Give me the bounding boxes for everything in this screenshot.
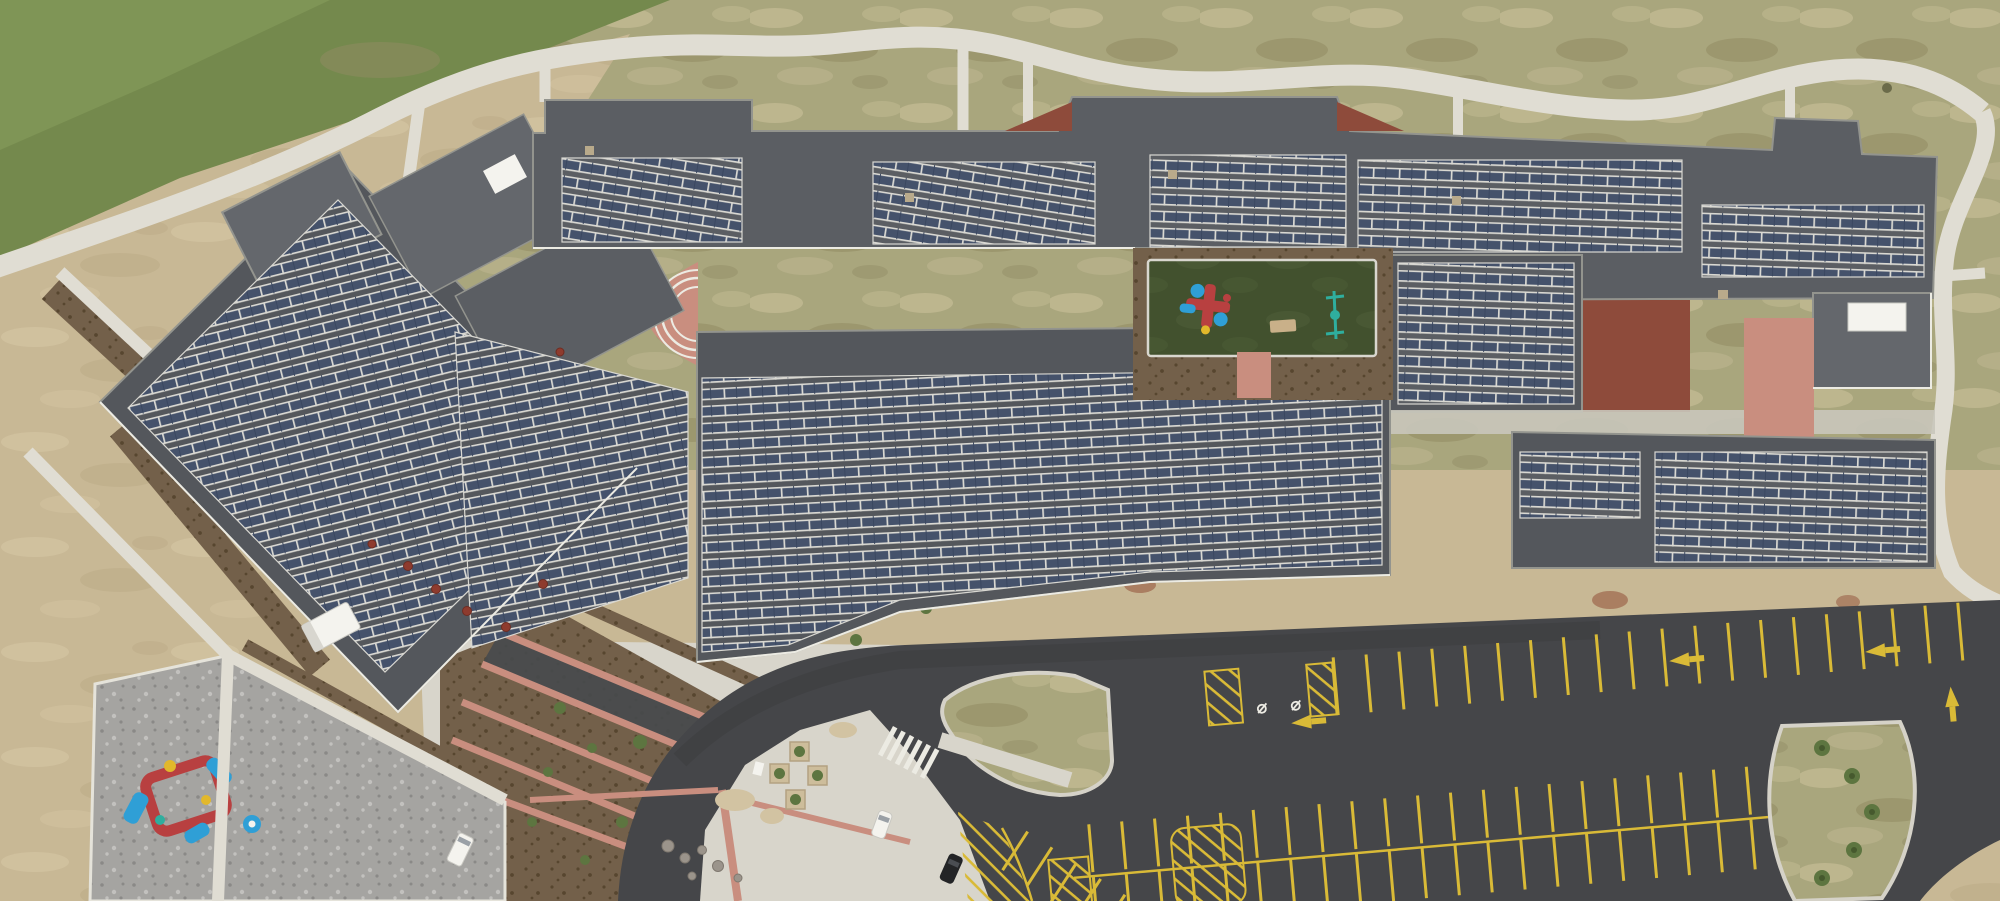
sidewalk-spur-east bbox=[1930, 273, 1985, 277]
aerial-photo-stage: Aerial drone photograph of a school camp… bbox=[0, 0, 2000, 901]
east-rooftop-unit bbox=[1848, 303, 1906, 331]
solar-array-courtyard-east bbox=[1398, 263, 1574, 404]
east-walk-gap bbox=[1390, 410, 1935, 434]
solar-array-north-1 bbox=[562, 158, 742, 242]
gravel-spinner bbox=[243, 815, 261, 833]
terracotta-courtyard-grass bbox=[1690, 302, 1744, 412]
no-park-hatch-accessible bbox=[1306, 662, 1336, 716]
solar-array-north-3 bbox=[1150, 155, 1346, 247]
solar-array-southeast-1 bbox=[1520, 452, 1640, 518]
courtyard-pink-connector bbox=[1237, 352, 1271, 398]
aerial-photo: Aerial drone photograph of a school camp… bbox=[0, 0, 2000, 901]
turf-courtyard bbox=[1133, 248, 1393, 400]
grass-mottle bbox=[320, 42, 440, 78]
sand-pile bbox=[760, 808, 784, 824]
solar-array-southeast-2 bbox=[1655, 452, 1927, 562]
solar-array-north-4 bbox=[1358, 160, 1682, 252]
terracotta-pink-walk-over bbox=[1744, 318, 1814, 452]
sand-pile bbox=[715, 789, 755, 811]
courtyard-bench bbox=[1270, 319, 1297, 333]
grass-island-east bbox=[1769, 722, 1915, 901]
sand-pile bbox=[829, 722, 857, 738]
solar-array-north-5 bbox=[1702, 205, 1924, 277]
solar-array-north-2 bbox=[873, 162, 1095, 244]
lone-shrub bbox=[1882, 83, 1892, 93]
red-dirt-stain bbox=[1592, 591, 1628, 609]
no-park-hatch-west bbox=[1204, 669, 1243, 726]
terracotta-courtyard-patio bbox=[1582, 300, 1690, 412]
no-park-hatch-island bbox=[1170, 823, 1247, 901]
